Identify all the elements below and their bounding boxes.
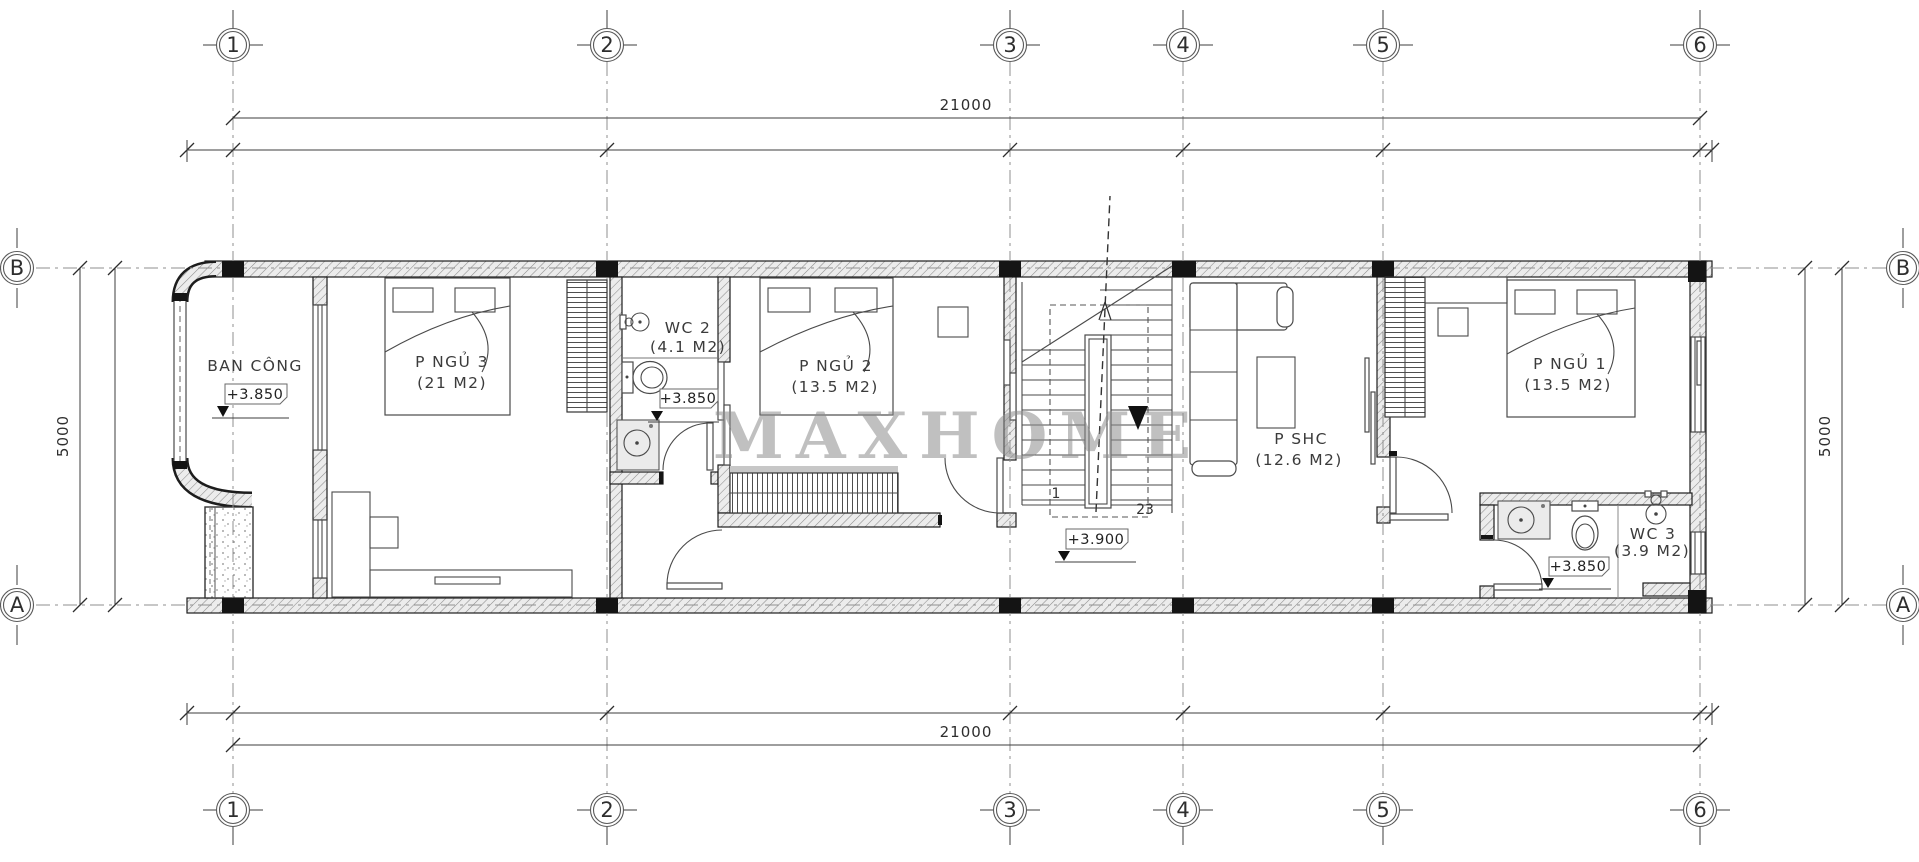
svg-text:6: 6 [1693, 798, 1706, 822]
grid-bubble-4-bottom: 4 [1153, 794, 1213, 846]
room-label-bedroom1: P NGỦ 1 [1533, 353, 1607, 373]
coffee-table-icon [1257, 357, 1295, 428]
toilet-icon [1572, 501, 1598, 550]
svg-text:+3.850: +3.850 [1550, 559, 1607, 575]
grid-bubble-1-top: 1 [203, 10, 263, 62]
svg-text:3: 3 [1003, 798, 1016, 822]
svg-text:2: 2 [600, 33, 613, 57]
door-swing-corridor [667, 530, 722, 589]
watermark: MAXHOME [713, 399, 1203, 474]
room-label-wc3: WC 3 [1630, 525, 1677, 543]
svg-text:6: 6 [1693, 33, 1706, 57]
room-area-bedroom1: (13.5 M2) [1524, 376, 1611, 394]
wardrobe-bedroom1 [1385, 277, 1425, 417]
svg-text:1: 1 [226, 798, 239, 822]
dim-right-height: 5000 [1816, 415, 1834, 457]
svg-text:A: A [1896, 593, 1911, 617]
svg-text:2: 2 [600, 798, 613, 822]
grid-bubble-3-top: 3 [980, 10, 1040, 62]
svg-text:3: 3 [1003, 33, 1016, 57]
room-label-wc2: WC 2 [665, 319, 712, 337]
svg-text:A: A [10, 593, 25, 617]
bed-icon-bedroom1 [1507, 280, 1635, 417]
svg-text:4: 4 [1176, 798, 1189, 822]
room-area-family: (12.6 M2) [1255, 451, 1342, 469]
room-area-wc2: (4.1 M2) [650, 338, 726, 356]
grid-bubble-1-bottom: 1 [203, 794, 263, 846]
grid-bubble-2-bottom: 2 [577, 794, 637, 846]
dim-top-total: 21000 [940, 96, 993, 114]
stair-last-tread: 23 [1136, 502, 1154, 518]
svg-text:+3.900: +3.900 [1068, 532, 1125, 548]
grid-bubble-3-bottom: 3 [980, 794, 1040, 846]
nightstand-bedroom1 [1438, 308, 1468, 336]
grid-bubble-6-bottom: 6 [1670, 794, 1730, 846]
stair-first-tread: 1 [1052, 486, 1061, 502]
svg-text:+3.850: +3.850 [660, 391, 717, 407]
wardrobe-bedroom3 [567, 280, 607, 412]
door-swing-bedroom1 [1389, 451, 1452, 513]
shower-icon [617, 420, 659, 470]
level-tag-balcony: +3.850 [212, 384, 289, 418]
floor-plan: 1 23 MAXHOME BAN C [0, 0, 1919, 862]
room-area-bedroom3: (21 M2) [417, 374, 487, 392]
grid-bubble-B-left: B [1, 228, 34, 308]
room-label-family: P SHC [1274, 430, 1328, 448]
svg-text:B: B [10, 256, 24, 280]
level-tag-wc3: +3.850 [1539, 557, 1611, 589]
window-balcony-wall [313, 305, 327, 578]
room-area-wc3: (3.9 M2) [1614, 542, 1690, 560]
svg-text:4: 4 [1176, 33, 1189, 57]
level-tag-stairs: +3.900 [1055, 529, 1136, 562]
svg-text:1: 1 [226, 33, 239, 57]
grid-bubble-A-left: A [1, 565, 34, 645]
door-swing-wc3 [1481, 535, 1542, 590]
room-label-balcony: BAN CÔNG [207, 356, 303, 375]
dim-bottom-total: 21000 [940, 723, 993, 741]
planter-box [205, 507, 253, 598]
nightstand-bedroom2 [938, 307, 968, 337]
level-tag-wc2: +3.850 [648, 389, 719, 422]
grid-bubble-A-right: A [1887, 565, 1919, 645]
grid-bubble-2-top: 2 [577, 10, 637, 62]
door-swing-wc2 [659, 423, 713, 484]
sliding-door-family-room [1365, 358, 1375, 464]
desk-bedroom3 [332, 492, 572, 597]
shower-icon [1498, 501, 1550, 539]
console-bedroom1 [1425, 277, 1507, 303]
room-area-bedroom2: (13.5 M2) [791, 378, 878, 396]
bed-icon-bedroom3 [385, 278, 510, 415]
grid-bubble-5-bottom: 5 [1353, 794, 1413, 846]
svg-text:B: B [1896, 256, 1910, 280]
svg-text:5: 5 [1376, 798, 1389, 822]
grid-bubble-6-top: 6 [1670, 10, 1730, 62]
svg-text:+3.850: +3.850 [227, 387, 284, 403]
grid-bubble-B-right: B [1887, 228, 1919, 308]
room-label-bedroom2: P NGỦ 2 [799, 355, 873, 375]
room-label-bedroom3: P NGỦ 3 [415, 351, 489, 371]
grid-bubble-4-top: 4 [1153, 10, 1213, 62]
svg-text:5: 5 [1376, 33, 1389, 57]
grid-bubble-5-top: 5 [1353, 10, 1413, 62]
dim-left-height: 5000 [54, 415, 72, 457]
